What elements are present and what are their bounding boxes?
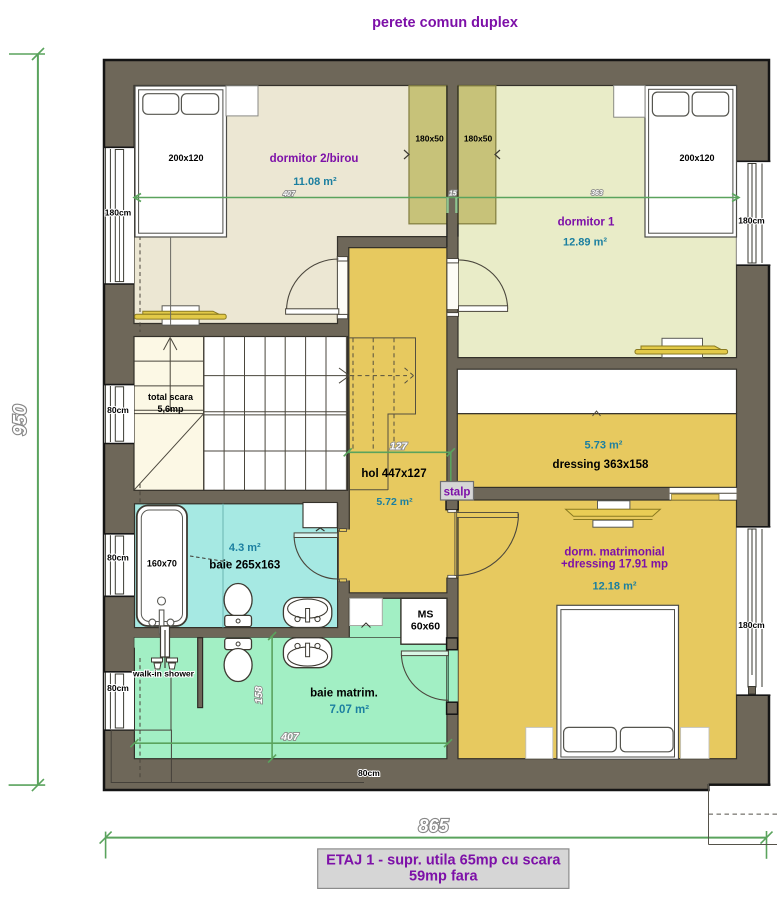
svg-text:dormitor 2/birou: dormitor 2/birou [270, 153, 359, 165]
svg-text:180cm: 180cm [738, 620, 765, 630]
svg-text:5,6mp: 5,6mp [157, 404, 184, 414]
svg-text:+dressing 17.91 mp: +dressing 17.91 mp [561, 559, 668, 571]
svg-text:ETAJ 1 - supr. utila 65mp cu s: ETAJ 1 - supr. utila 65mp cu scara [326, 853, 561, 869]
svg-text:walk-in shower: walk-in shower [132, 669, 195, 679]
svg-text:950: 950 [9, 404, 30, 436]
svg-text:200x120: 200x120 [168, 153, 203, 163]
svg-text:5.73 m²: 5.73 m² [585, 440, 623, 452]
svg-text:7.07 m²: 7.07 m² [329, 704, 369, 716]
svg-text:80cm: 80cm [107, 405, 129, 415]
svg-text:180x50: 180x50 [415, 134, 444, 144]
svg-text:60x60: 60x60 [411, 621, 440, 633]
svg-text:407: 407 [282, 191, 296, 198]
svg-text:865: 865 [418, 816, 449, 836]
svg-text:200x120: 200x120 [679, 153, 714, 163]
svg-text:dormitor 1: dormitor 1 [558, 217, 615, 229]
svg-text:perete comun duplex: perete comun duplex [372, 15, 518, 31]
svg-text:15: 15 [449, 190, 457, 197]
svg-text:11.08 m²: 11.08 m² [293, 176, 337, 188]
svg-text:stalp: stalp [444, 487, 471, 499]
svg-text:baie 265x163: baie 265x163 [209, 560, 280, 572]
svg-text:407: 407 [280, 731, 300, 743]
svg-text:MS: MS [418, 609, 434, 621]
svg-text:180cm: 180cm [105, 208, 132, 218]
svg-text:160x70: 160x70 [147, 559, 177, 569]
svg-text:dorm. matrimonial: dorm. matrimonial [564, 547, 664, 559]
svg-text:4.3 m²: 4.3 m² [229, 542, 261, 554]
svg-text:total scara: total scara [148, 392, 194, 402]
svg-text:363: 363 [591, 190, 603, 197]
svg-text:baie matrim.: baie matrim. [310, 688, 378, 700]
svg-text:hol 447x127: hol 447x127 [361, 468, 426, 480]
svg-text:5.72 m²: 5.72 m² [376, 496, 413, 508]
svg-text:12.89 m²: 12.89 m² [563, 237, 607, 249]
svg-text:80cm: 80cm [107, 683, 129, 693]
svg-text:180x50: 180x50 [464, 134, 493, 144]
svg-text:dressing 363x158: dressing 363x158 [553, 459, 650, 471]
svg-text:158: 158 [253, 686, 265, 704]
svg-text:127: 127 [390, 441, 409, 453]
svg-text:12.18 m²: 12.18 m² [592, 581, 636, 593]
svg-text:80cm: 80cm [107, 553, 129, 563]
svg-text:80cm: 80cm [358, 768, 380, 778]
svg-text:180cm: 180cm [738, 216, 765, 226]
svg-text:59mp fara: 59mp fara [409, 869, 478, 885]
